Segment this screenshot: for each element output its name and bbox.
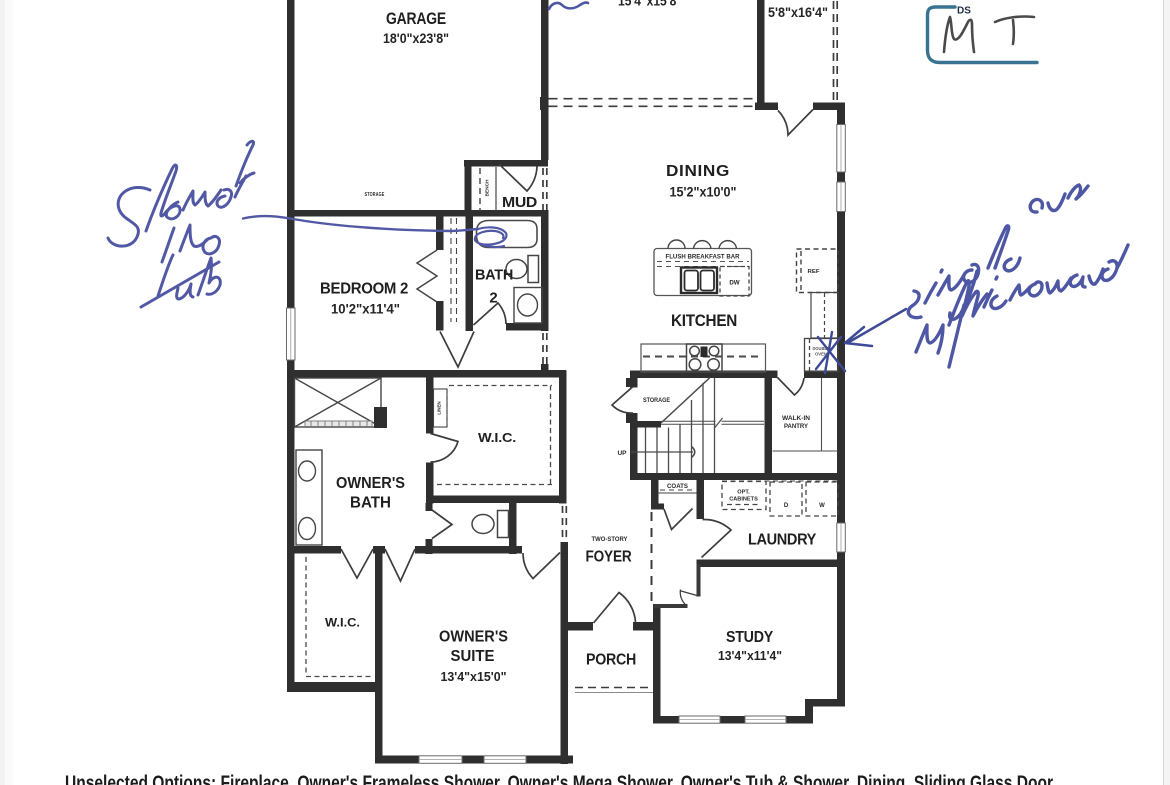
svg-text:MUD: MUD (502, 195, 537, 211)
svg-text:STORAGE: STORAGE (643, 397, 671, 404)
svg-text:STORAGE: STORAGE (365, 192, 385, 198)
svg-text:D: D (784, 503, 789, 509)
svg-text:LINEN: LINEN (436, 401, 441, 414)
svg-text:GARAGE: GARAGE (386, 10, 446, 28)
svg-text:13'4"x15'0": 13'4"x15'0" (441, 669, 507, 684)
svg-text:BENCH: BENCH (485, 179, 491, 197)
svg-text:DINING: DINING (666, 163, 730, 180)
svg-text:DW: DW (729, 280, 739, 287)
svg-text:REF: REF (808, 269, 821, 275)
svg-text:SUITE: SUITE (451, 648, 495, 665)
svg-text:FOYER: FOYER (586, 549, 632, 566)
svg-text:OPT.: OPT. (737, 490, 750, 496)
svg-text:WALK-IN: WALK-IN (782, 415, 811, 422)
svg-text:2: 2 (489, 290, 497, 307)
svg-text:LAUNDRY: LAUNDRY (748, 532, 817, 549)
svg-text:W.I.C.: W.I.C. (325, 618, 360, 630)
svg-text:W: W (819, 503, 825, 509)
svg-text:BATH: BATH (350, 495, 391, 512)
svg-text:OWNER'S: OWNER'S (336, 475, 405, 492)
svg-text:TWO-STORY: TWO-STORY (592, 536, 628, 543)
svg-text:COATS: COATS (667, 483, 689, 490)
svg-text:10'2"x11'4": 10'2"x11'4" (331, 302, 400, 317)
svg-text:18'0"x23'8": 18'0"x23'8" (383, 31, 449, 46)
svg-text:15'2"x10'0": 15'2"x10'0" (670, 185, 737, 200)
svg-text:STUDY: STUDY (726, 629, 774, 646)
svg-text:FLUSH BREAKFAST BAR: FLUSH BREAKFAST BAR (666, 254, 741, 261)
svg-text:PORCH: PORCH (586, 652, 636, 669)
svg-text:DS: DS (957, 6, 971, 17)
svg-text:BEDROOM 2: BEDROOM 2 (320, 281, 408, 298)
svg-text:OWNER'S: OWNER'S (439, 629, 508, 646)
svg-text:13'4"x11'4": 13'4"x11'4" (718, 648, 782, 663)
svg-text:BATH: BATH (475, 267, 513, 284)
svg-text:W.I.C.: W.I.C. (478, 431, 516, 445)
svg-text:Unselected Options: Fireplace,: Unselected Options: Fireplace, Owner's F… (65, 773, 1053, 785)
svg-text:KITCHEN: KITCHEN (671, 312, 737, 330)
svg-text:5'8"x16'4": 5'8"x16'4" (768, 5, 828, 20)
svg-text:UP: UP (617, 450, 627, 457)
svg-text:15'4"x15'8": 15'4"x15'8" (618, 0, 682, 9)
svg-text:PANTRY: PANTRY (784, 423, 809, 430)
svg-text:CABINETS: CABINETS (729, 497, 758, 503)
